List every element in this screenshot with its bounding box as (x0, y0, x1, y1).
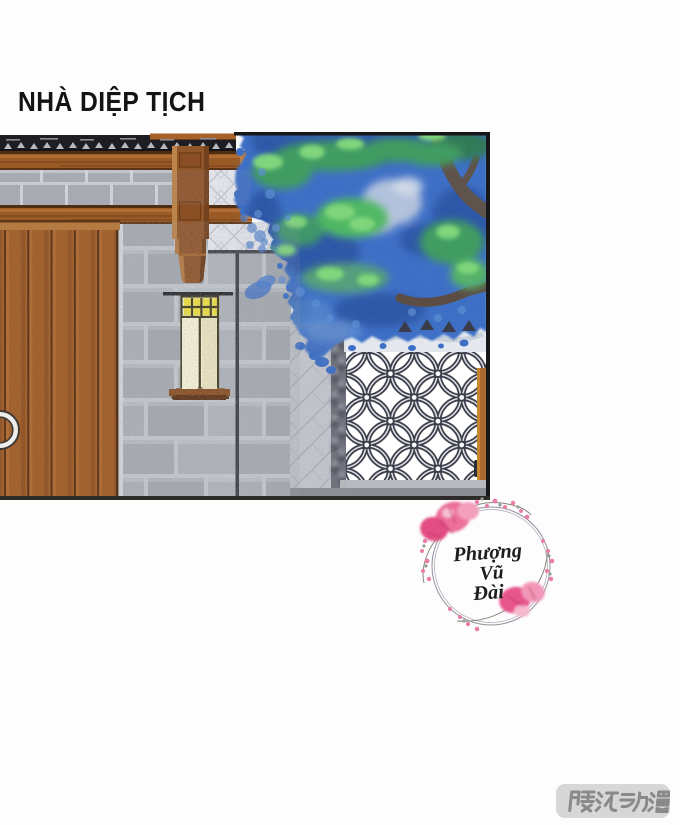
svg-text:Đài: Đài (471, 581, 505, 605)
